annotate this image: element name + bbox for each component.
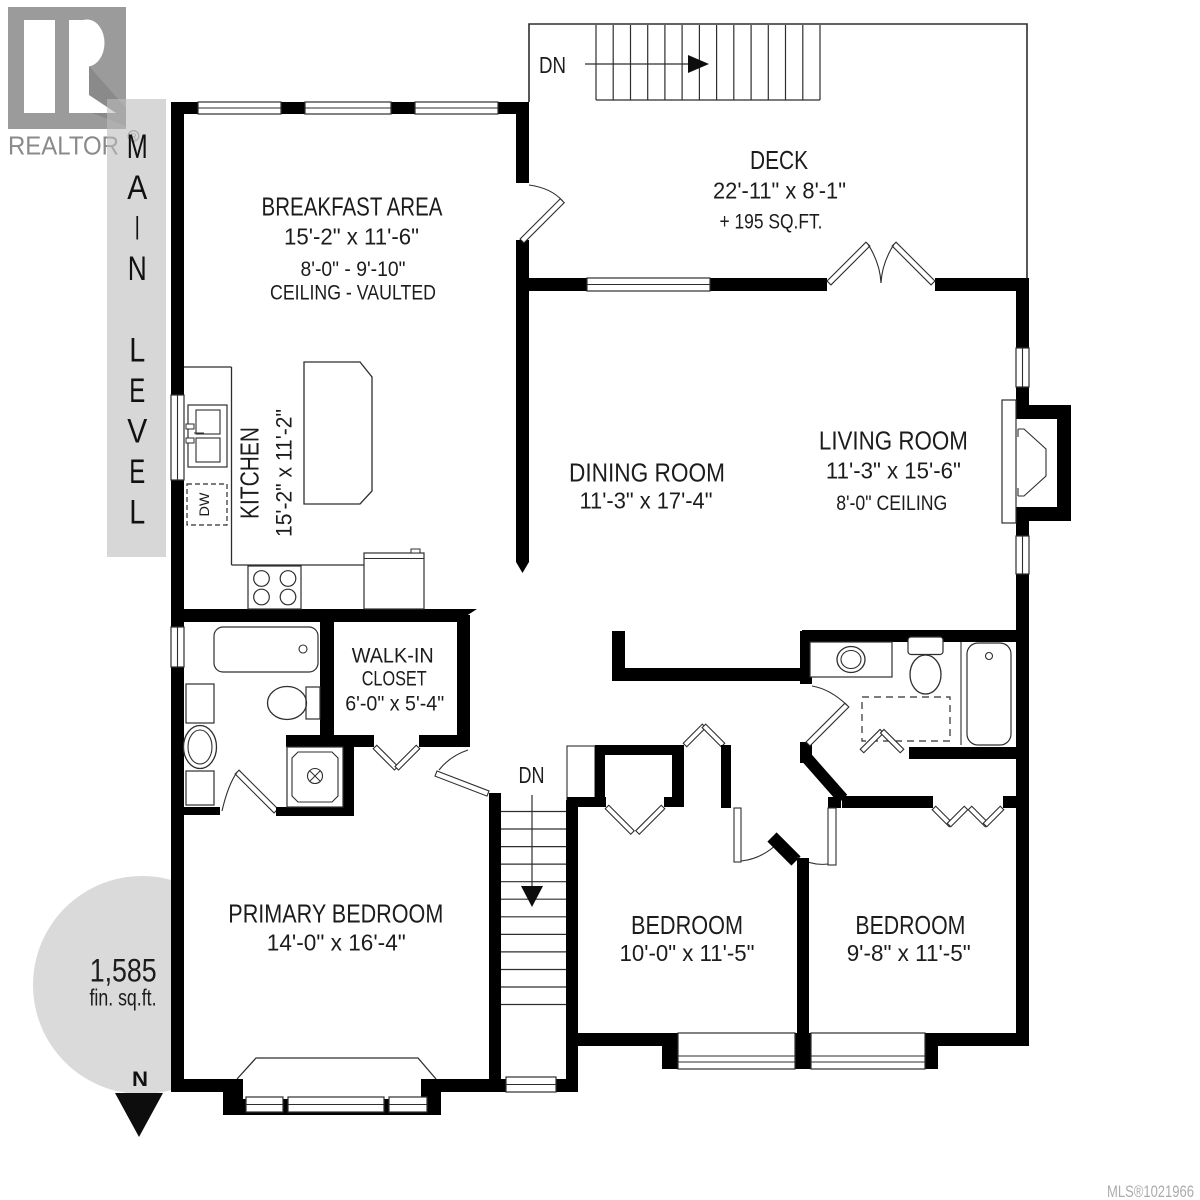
svg-text:LIVING ROOM: LIVING ROOM — [819, 427, 968, 455]
svg-text:BREAKFAST AREA: BREAKFAST AREA — [262, 193, 443, 221]
svg-text:N: N — [128, 250, 147, 288]
svg-text:DN: DN — [519, 762, 545, 788]
svg-text:DINING ROOM: DINING ROOM — [569, 460, 725, 488]
svg-text:1,585: 1,585 — [90, 953, 157, 989]
svg-text:9'-8" x 11'-5": 9'-8" x 11'-5" — [847, 940, 971, 966]
svg-text:L: L — [129, 331, 145, 369]
svg-text:KITCHEN: KITCHEN — [237, 427, 265, 519]
svg-text:8'-0" - 9'-10": 8'-0" - 9'-10" — [301, 257, 406, 281]
svg-text:V: V — [127, 413, 147, 451]
svg-text:11'-3" x 15'-6": 11'-3" x 15'-6" — [826, 458, 961, 484]
svg-text:PRIMARY BEDROOM: PRIMARY BEDROOM — [228, 898, 443, 928]
svg-text:L: L — [129, 494, 145, 532]
svg-text:fin. sq.ft.: fin. sq.ft. — [90, 985, 157, 1011]
svg-text:8'-0" CEILING: 8'-0" CEILING — [836, 491, 947, 515]
svg-text:14'-0" x 16'-4": 14'-0" x 16'-4" — [267, 929, 406, 955]
svg-text:DW: DW — [196, 492, 212, 517]
svg-text:A: A — [127, 169, 147, 207]
svg-text:REALTOR: REALTOR — [8, 133, 119, 161]
svg-text:I: I — [135, 209, 140, 247]
svg-text:6'-0" x 5'-4": 6'-0" x 5'-4" — [345, 692, 444, 716]
svg-text:WALK-IN: WALK-IN — [352, 645, 434, 668]
svg-text:11'-3" x 17'-4": 11'-3" x 17'-4" — [580, 487, 713, 513]
svg-text:15'-2" x 11'-6": 15'-2" x 11'-6" — [284, 223, 419, 249]
svg-text:15'-2" x 11'-2": 15'-2" x 11'-2" — [272, 409, 297, 537]
svg-text:BEDROOM: BEDROOM — [855, 910, 965, 940]
svg-text:N: N — [132, 1068, 148, 1091]
svg-text:10'-0" x 11'-5": 10'-0" x 11'-5" — [620, 940, 755, 966]
svg-text:E: E — [129, 372, 145, 410]
svg-text:BEDROOM: BEDROOM — [631, 910, 743, 940]
svg-text:DN: DN — [539, 52, 566, 78]
svg-text:CLOSET: CLOSET — [362, 668, 427, 691]
svg-text:M: M — [127, 128, 148, 166]
svg-text:+ 195 SQ.FT.: + 195 SQ.FT. — [720, 209, 823, 233]
svg-text:E: E — [129, 453, 145, 491]
svg-text:CEILING - VAULTED: CEILING - VAULTED — [270, 280, 436, 304]
svg-text:MLS®1021966: MLS®1021966 — [1107, 1183, 1194, 1200]
svg-text:22'-11" x 8'-1": 22'-11" x 8'-1" — [713, 177, 846, 203]
svg-text:DECK: DECK — [750, 145, 809, 175]
